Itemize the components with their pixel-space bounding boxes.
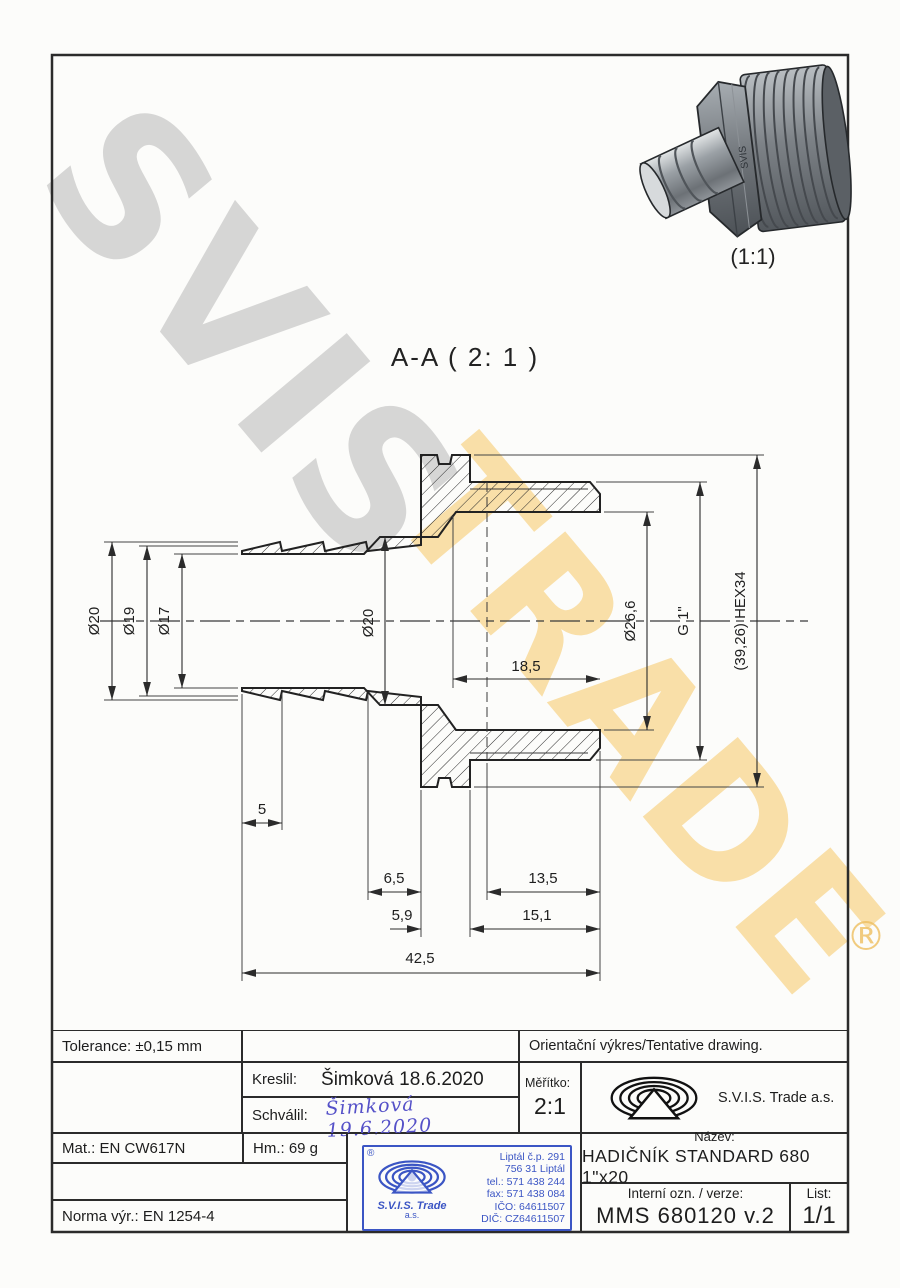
meritko-value: 2:1 (534, 1093, 566, 1120)
schvalil-cell: Schválil: Šimková 19.6.2020 (242, 1097, 519, 1133)
dim-dia-mid: Ø19 (121, 607, 138, 635)
stamp-phone: tel.: 571 438 244 (460, 1176, 565, 1189)
interni-value: MMS 680120 v.2 (596, 1203, 775, 1229)
nazev-label: Název: (694, 1129, 734, 1144)
norma-text: Norma výr.: EN 1254-4 (62, 1208, 215, 1225)
stamp-address: Liptál č.p. 291 756 31 Liptál tel.: 571 … (460, 1151, 570, 1226)
dim-thread-total: 15,1 (522, 907, 551, 924)
dim-thread-len: 13,5 (528, 870, 557, 887)
meritko-cell: Měřítko: 2:1 (519, 1062, 581, 1133)
company-cell: S.V.I.S. Trade a.s. (581, 1062, 848, 1133)
thumb-scale-label: (1:1) (730, 244, 775, 269)
dim-bore-depth: 18,5 (511, 658, 540, 675)
schvalil-label: Schválil: (252, 1107, 308, 1124)
empty-cell-left (52, 1062, 242, 1133)
stamp-address-line: 756 31 Liptál (460, 1163, 565, 1176)
interni-label: Interní ozn. / verze: (628, 1186, 744, 1201)
drawing-sheet: SVIS TRADE ® (0, 0, 900, 1288)
part-3d-view: SVIS (625, 63, 858, 248)
list-label: List: (807, 1186, 832, 1201)
weight-cell: Hm.: 69 g (243, 1133, 347, 1163)
norma-cell: Norma výr.: EN 1254-4 (52, 1200, 347, 1232)
company-name: S.V.I.S. Trade a.s. (718, 1090, 834, 1106)
dim-neck: 6,5 (384, 870, 405, 887)
kreslil-value: Šimková 18.6.2020 (321, 1069, 484, 1091)
list-cell: List: 1/1 (790, 1183, 848, 1232)
dim-hex: (39,26) HEX34 (732, 571, 749, 670)
material-text: Mat.: EN CW617N (62, 1140, 185, 1157)
dim-dia-bore-small: Ø17 (156, 607, 173, 635)
dim-dia-thread-bore: Ø26,6 (622, 601, 639, 642)
tolerance-text: Tolerance: ±0,15 mm (62, 1038, 202, 1055)
tentative-drawing-text: Orientační výkres/Tentative drawing. (529, 1038, 763, 1054)
dim-dia-outer: Ø20 (86, 607, 103, 635)
dim-overall: 42,5 (405, 950, 434, 967)
material-cell: Mat.: EN CW617N (52, 1133, 243, 1163)
section-upper-half (242, 455, 600, 554)
dim-barb-seg: 5 (258, 801, 266, 818)
company-stamp: ® S.V.I.S. Trade a.s. Liptál č.p. 291 (362, 1145, 572, 1231)
empty-cell-mid (52, 1163, 347, 1200)
nazev-value: HADIČNÍK STANDARD 680 1"x20 (582, 1146, 847, 1188)
stamp-dic: DIČ: CZ64611507 (460, 1213, 565, 1226)
dim-hex-width: 5,9 (392, 907, 413, 924)
company-logo (604, 1071, 704, 1125)
stamp-cell: ® S.V.I.S. Trade a.s. Liptál č.p. 291 (347, 1133, 581, 1232)
list-value: 1/1 (802, 1202, 835, 1230)
kreslil-label: Kreslil: (252, 1071, 297, 1088)
stamp-logo (373, 1157, 451, 1197)
stamp-fax: fax: 571 438 084 (460, 1188, 565, 1201)
title-block: Tolerance: ±0,15 mm Orientační výkres/Te… (52, 1030, 848, 1232)
stamp-suffix: a.s. (364, 1211, 460, 1220)
weight-text: Hm.: 69 g (253, 1140, 318, 1157)
nazev-cell: Název: HADIČNÍK STANDARD 680 1"x20 (581, 1133, 848, 1183)
section-lower-half (242, 688, 600, 787)
dimension-labels: Ø20 Ø19 Ø17 Ø20 Ø26,6 G 1" (39,26) HEX34… (86, 571, 749, 967)
stamp-address-line: Liptál č.p. 291 (460, 1151, 565, 1164)
tolerance-cell: Tolerance: ±0,15 mm (52, 1030, 242, 1062)
interni-cell: Interní ozn. / verze: MMS 680120 v.2 (581, 1183, 790, 1232)
stamp-logo-block: S.V.I.S. Trade a.s. (364, 1157, 460, 1220)
stamp-company: S.V.I.S. Trade (364, 1201, 460, 1211)
dim-thread: G 1" (675, 606, 692, 636)
stamp-ico: IČO: 64611507 (460, 1201, 565, 1214)
dim-dia-bore: Ø20 (360, 609, 377, 637)
tentative-drawing-cell: Orientační výkres/Tentative drawing. (519, 1030, 848, 1062)
section-label: A-A ( 2: 1 ) (391, 342, 539, 372)
meritko-label: Měřítko: (520, 1076, 570, 1090)
empty-cell-top (242, 1030, 519, 1062)
